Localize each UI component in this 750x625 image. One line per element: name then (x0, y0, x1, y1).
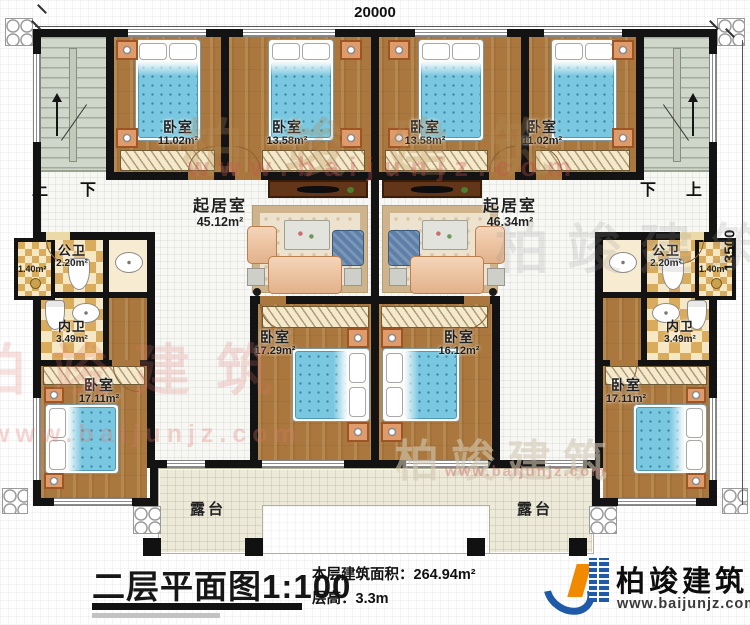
wall (155, 460, 595, 468)
corner-ornament (589, 506, 617, 534)
window (709, 398, 717, 480)
window (406, 460, 488, 468)
stair-rail (69, 48, 77, 162)
nightstand (340, 40, 362, 60)
floor-area-line: 本层建筑面积：264.94m² (312, 564, 476, 588)
dimension-right-line (742, 40, 743, 505)
nightstand (44, 473, 64, 489)
nightstand (381, 328, 403, 348)
tv-console (268, 180, 368, 198)
corner-ornament (722, 488, 748, 514)
sink-icon (115, 252, 143, 273)
nightstand (686, 387, 706, 403)
window (128, 29, 206, 37)
room-label-bedroom-bottom-right: 卧室 17.11m² (588, 378, 664, 405)
window (709, 54, 717, 142)
wardrobe (262, 150, 365, 171)
room-label-public-bath-left: 公卫 2.20m² (46, 244, 98, 269)
room-label-bedroom-top-right-2: 卧室 13.58m² (395, 120, 455, 147)
lamp-icon (489, 288, 497, 296)
bed (382, 348, 460, 422)
sink-icon (609, 252, 637, 273)
room-label-bedroom-bottom-center-right: 卧室 16.12m² (421, 330, 497, 357)
nightstand (381, 422, 403, 442)
coffee-table (284, 220, 330, 250)
nightstand (340, 128, 362, 148)
side-table (247, 268, 265, 286)
wall (106, 29, 114, 180)
terrace-door (167, 460, 205, 468)
wall (521, 29, 529, 180)
stair-arrow-icon (688, 88, 698, 102)
window (618, 498, 696, 506)
dimension-right: 13500 (722, 221, 739, 281)
room-label-living-right: 起居室 46.34m² (478, 198, 542, 229)
room-label-bedroom-top-left-1: 卧室 11.02m² (148, 120, 208, 147)
corner-ornament (5, 18, 33, 46)
stair-label-up-right: 上 (686, 176, 702, 200)
window (33, 54, 41, 142)
window (33, 398, 41, 480)
corner-ornament (133, 506, 161, 534)
room-label-public-bath-right: 公卫 2.20m² (640, 244, 692, 269)
plant-icon (461, 187, 468, 193)
wall (636, 29, 644, 180)
nightstand (347, 422, 369, 442)
room-bedroom-bottom-left-entry (109, 298, 147, 366)
corner-ornament (2, 488, 28, 514)
wall (371, 29, 379, 468)
plan-info: 本层建筑面积：264.94m² 层高：3.3m (312, 564, 476, 612)
wall (221, 29, 229, 180)
room-label-bedroom-bottom-left: 卧室 17.11m² (61, 378, 137, 405)
wardrobe (385, 150, 488, 171)
window (415, 29, 507, 37)
nightstand (388, 40, 410, 60)
dimension-top: 20000 (340, 4, 410, 21)
bed (292, 348, 370, 422)
nightstand (116, 40, 138, 60)
room-bedroom-bottom-right-entry (603, 298, 641, 366)
tv-console (382, 180, 482, 198)
bed (45, 404, 119, 474)
brand-url: www.baijunjz.com (617, 596, 750, 612)
side-table (389, 268, 407, 286)
side-table (344, 268, 362, 286)
window (54, 498, 132, 506)
coffee-table (422, 220, 468, 250)
dimension-top-line (35, 26, 715, 27)
room-label-terrace-left: 露台 (190, 498, 226, 519)
title-underline-shadow (92, 613, 220, 618)
planter-icon (711, 278, 722, 289)
room-label-bedroom-bottom-center-left: 卧室 17.29m² (237, 330, 313, 357)
room-label-living-left: 起居室 45.12m² (188, 198, 252, 229)
terrace-column (143, 538, 161, 556)
nightstand (116, 128, 138, 148)
sofa (268, 256, 342, 294)
wall (492, 296, 500, 468)
room-label-private-bath-left: 内卫 3.49m² (44, 320, 100, 345)
room-label-private-bath-right: 内卫 3.49m² (652, 320, 708, 345)
lamp-icon (253, 288, 261, 296)
window (544, 29, 622, 37)
bed (633, 404, 707, 474)
terrace-notch (262, 505, 490, 554)
stair-label-up-left: 上 (32, 176, 48, 200)
window (243, 29, 335, 37)
stair-label-down-left: 下 (80, 176, 96, 200)
terrace-column (467, 538, 485, 556)
wall (147, 232, 155, 468)
plant-icon (347, 187, 354, 193)
terrace-column (569, 538, 587, 556)
window (262, 460, 344, 468)
terrace-column (245, 538, 263, 556)
wall (595, 232, 603, 468)
title-underline (92, 603, 302, 610)
terrace-door (545, 460, 583, 468)
tv-icon (297, 186, 339, 193)
planter-icon (30, 278, 41, 289)
room-label-bedroom-top-right-1: 卧室 11.02m² (512, 120, 572, 147)
nightstand (612, 40, 634, 60)
wall (250, 296, 258, 468)
tv-icon (411, 186, 453, 193)
wall (103, 240, 109, 366)
nightstand (347, 328, 369, 348)
floor-height-line: 层高：3.3m (312, 588, 476, 612)
room-label-ledge-left: 1.40m² (18, 264, 47, 274)
stair-arrow-icon (52, 88, 62, 102)
room-label-terrace-right: 露台 (517, 498, 553, 519)
floor-plan-canvas: 20000 13500 露台 露台 (0, 0, 750, 625)
stair-rail (673, 48, 681, 162)
brand-name: 柏竣建筑 (616, 558, 748, 600)
room-label-bedroom-top-left-2: 卧室 13.58m² (257, 120, 317, 147)
sofa (410, 256, 484, 294)
stair-label-down-right: 下 (640, 176, 656, 200)
nightstand (686, 473, 706, 489)
side-table (487, 268, 505, 286)
logo-building-icon (589, 558, 609, 602)
nightstand (612, 128, 634, 148)
